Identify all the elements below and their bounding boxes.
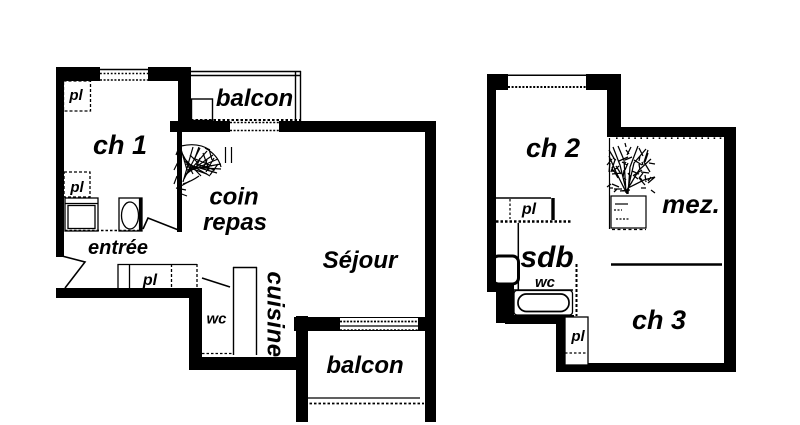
svg-text:sdb: sdb — [520, 241, 573, 274]
svg-text:mez.: mez. — [662, 189, 720, 219]
svg-text:balcon: balcon — [326, 352, 403, 379]
svg-text:ch 3: ch 3 — [632, 305, 686, 335]
svg-text:balcon: balcon — [216, 85, 293, 112]
svg-text:Séjour: Séjour — [323, 247, 399, 274]
svg-text:repas: repas — [203, 209, 267, 236]
svg-text:pl: pl — [570, 328, 585, 345]
svg-text:ch 1: ch 1 — [93, 130, 147, 160]
svg-text:pl: pl — [68, 87, 83, 104]
svg-text:pl: pl — [521, 201, 537, 218]
svg-text:pl: pl — [69, 179, 84, 196]
svg-text:ch 2: ch 2 — [526, 133, 580, 163]
svg-text:pl: pl — [142, 272, 158, 289]
svg-text:wc: wc — [535, 274, 556, 291]
svg-text:wc: wc — [206, 311, 227, 328]
svg-text:entrée: entrée — [88, 237, 148, 259]
svg-text:cuisine: cuisine — [262, 271, 289, 357]
svg-text:coin: coin — [209, 184, 258, 211]
